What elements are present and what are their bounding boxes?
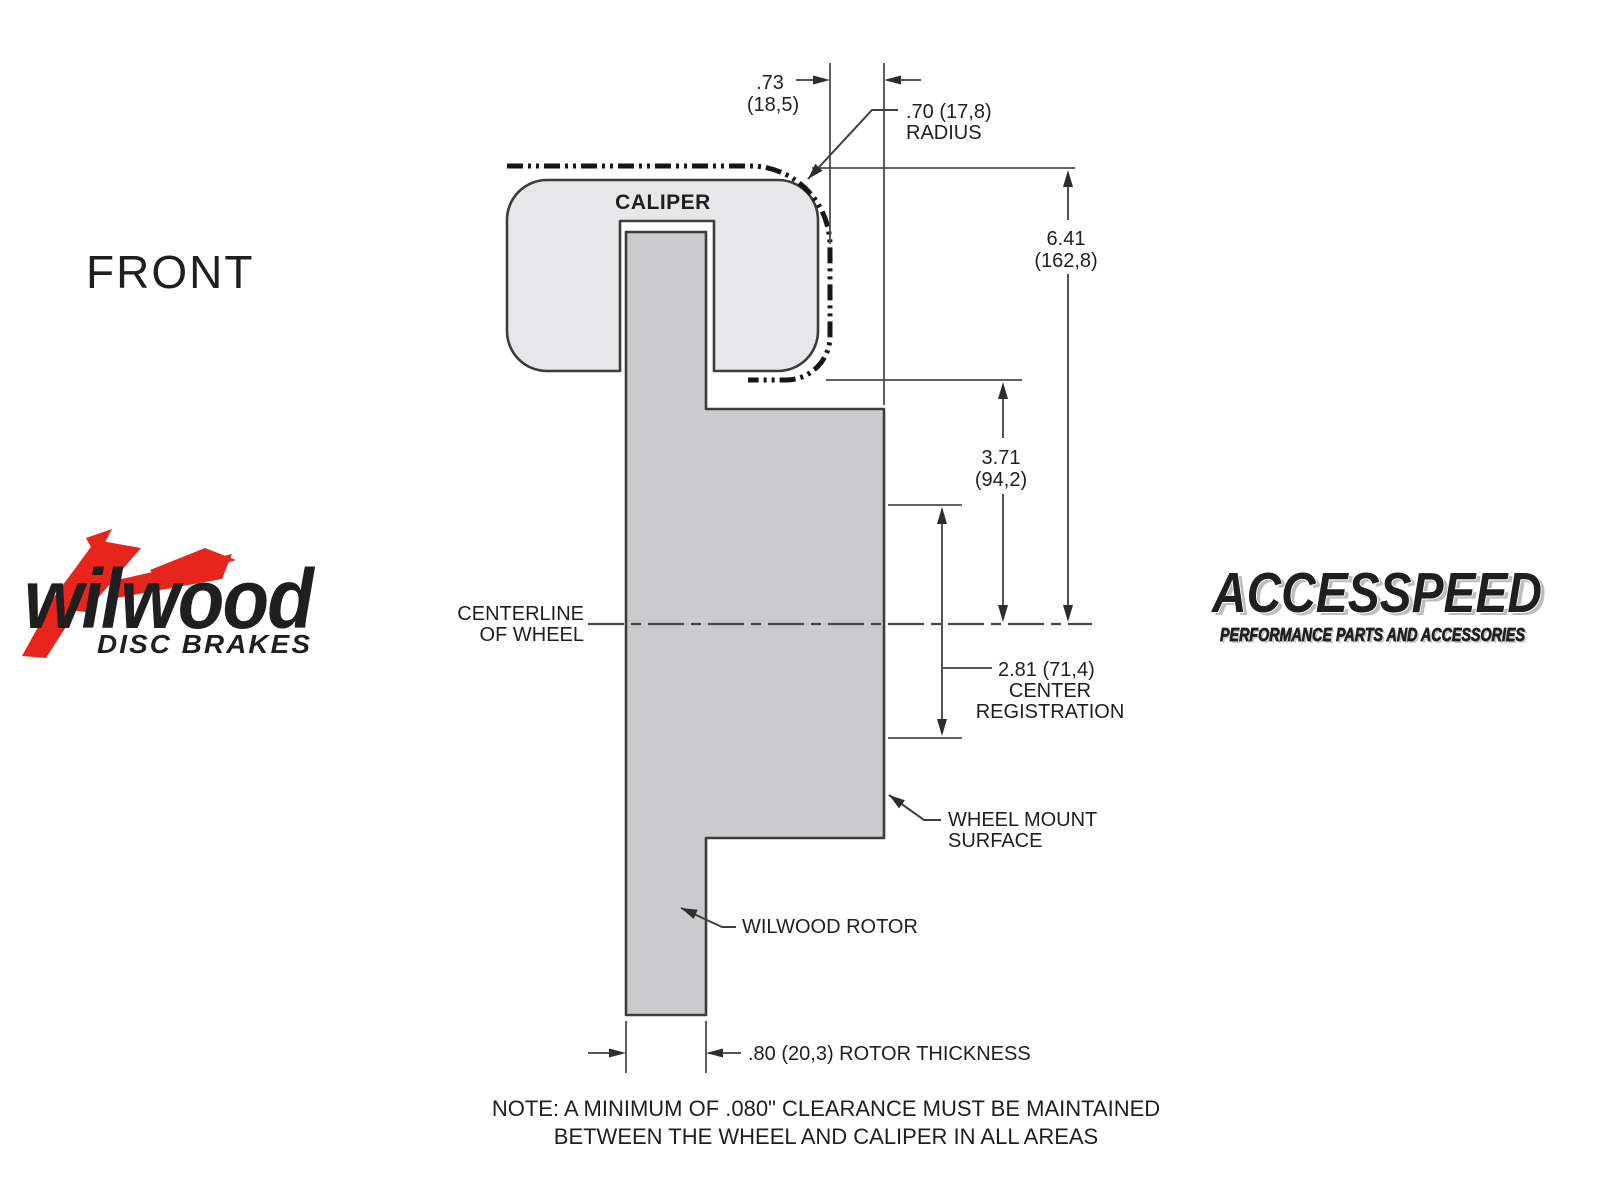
center-registration-word2: REGISTRATION [976, 701, 1125, 723]
wilwood-tagline: DISC BRAKES [97, 629, 312, 659]
accesspeed-wordmark: ACCESSPEED [1210, 561, 1542, 625]
note-line2: BETWEEN THE WHEEL AND CALIPER IN ALL ARE… [554, 1124, 1098, 1149]
front-view-label: FRONT [86, 246, 254, 298]
dim-hat-depth-value: 3.71 [982, 447, 1021, 469]
caliper-label: CALIPER [615, 191, 711, 214]
centerline-label-line1: CENTERLINE [457, 603, 584, 625]
wilwood-logo: wilwood DISC BRAKES [22, 529, 315, 659]
dim-caliper-height-metric: (162,8) [1034, 250, 1097, 272]
note-line1: NOTE: A MINIMUM OF .080" CLEARANCE MUST … [492, 1096, 1160, 1121]
dim-hat-depth-metric: (94,2) [975, 469, 1027, 491]
center-registration-word1: CENTER [1009, 680, 1091, 702]
brake-diagram-canvas: FRONT CALIPER .73 (18,5) .70 (17,8) RADI… [0, 0, 1600, 1200]
rotor-thickness-label: .80 (20,3) ROTOR THICKNESS [748, 1043, 1031, 1065]
dim-caliper-height-value: 6.41 [1047, 228, 1086, 250]
technical-drawing-page: FRONT CALIPER .73 (18,5) .70 (17,8) RADI… [0, 0, 1600, 1200]
center-registration-value: 2.81 (71,4) [998, 659, 1095, 681]
wheel-mount-label-line1: WHEEL MOUNT [948, 809, 1097, 831]
centerline-label-line2: OF WHEEL [480, 624, 584, 646]
accesspeed-logo: ACCESSPEED ACCESSPEED PERFORMANCE PARTS … [1210, 561, 1546, 647]
radius-callout-word: RADIUS [906, 122, 982, 144]
dim-overhang-value: .73 [756, 72, 784, 94]
dim-overhang-metric: (18,5) [747, 94, 799, 116]
wheel-mount-label-line2: SURFACE [948, 830, 1042, 852]
accesspeed-tagline: PERFORMANCE PARTS AND ACCESSORIES [1220, 625, 1525, 645]
radius-callout-value: .70 (17,8) [906, 101, 992, 123]
rotor-callout-label: WILWOOD ROTOR [742, 916, 918, 938]
